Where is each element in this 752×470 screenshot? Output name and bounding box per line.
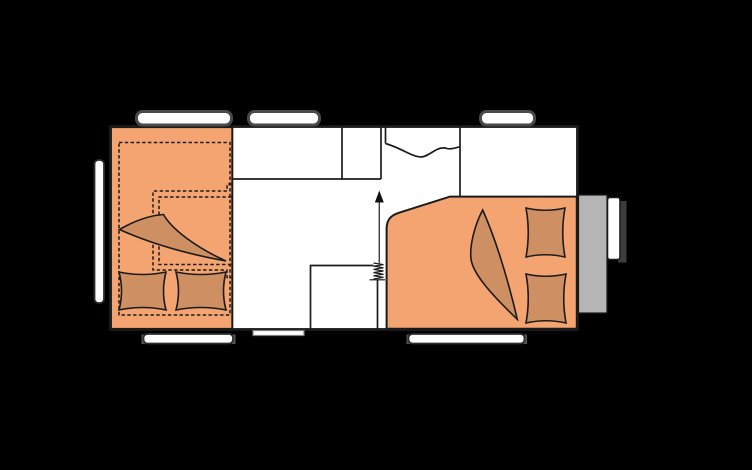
window-top-1 xyxy=(137,112,232,126)
lounge-pillow-left xyxy=(119,272,166,310)
lounge-pillow-right xyxy=(176,272,226,310)
window-bottom-2 xyxy=(407,334,528,344)
window-top-2 xyxy=(249,112,320,126)
floorplan-canvas xyxy=(0,0,752,470)
window-rear xyxy=(95,160,105,303)
bed-pillow-top xyxy=(526,208,565,257)
window-bottom-2-glass xyxy=(409,334,525,344)
hitch-bar xyxy=(608,198,621,260)
front-storage-box xyxy=(579,195,608,313)
window-top-3 xyxy=(481,112,535,126)
entry-step xyxy=(253,331,304,336)
bed-pillow-bottom xyxy=(526,274,566,323)
caravan-floorplan xyxy=(0,0,752,470)
window-bottom-1 xyxy=(142,334,236,344)
window-bottom-1-glass xyxy=(144,334,234,344)
